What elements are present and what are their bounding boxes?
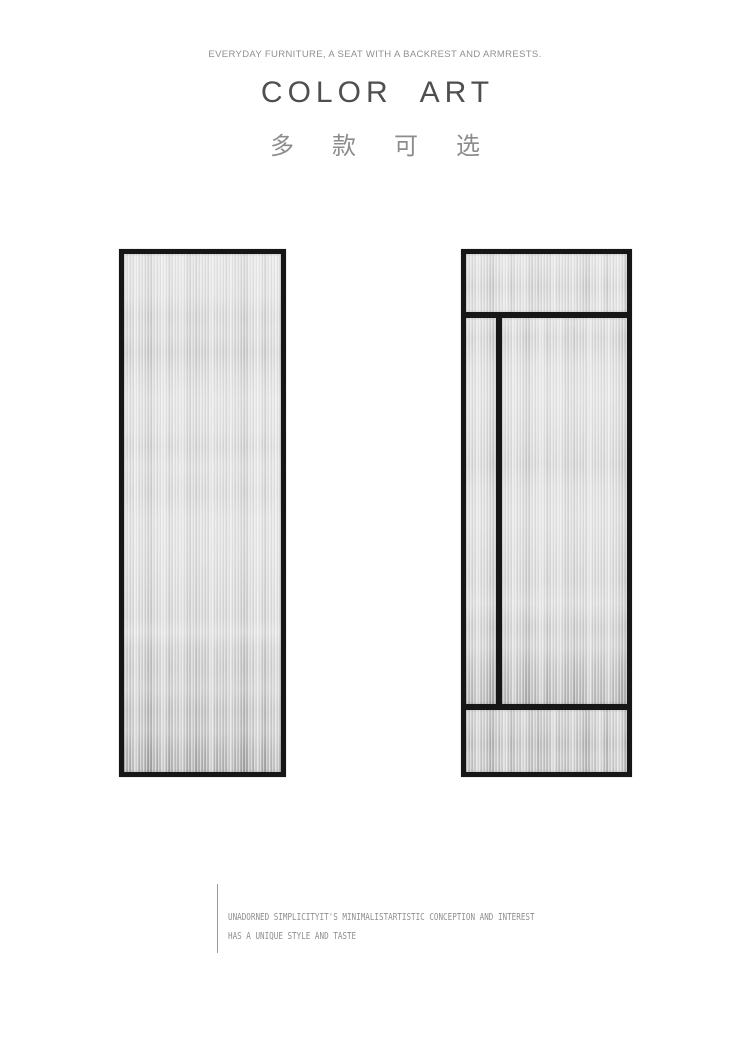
footer-caption: UNADORNED SIMPLICITYIT'S MINIMALISTARTIS…	[228, 908, 535, 946]
glass-pane-main	[502, 318, 627, 704]
tagline-text: EVERYDAY FURNITURE, A SEAT WITH A BACKRE…	[0, 49, 750, 60]
glass-panel-single	[119, 249, 286, 777]
glass-pane-top-band	[466, 254, 627, 312]
glass-pane-bottom-band	[466, 710, 627, 772]
title-word-art: ART	[420, 76, 494, 110]
glass-panel-middle-section	[466, 318, 627, 704]
title-word-color: COLOR	[261, 76, 393, 110]
caption-line-2: HAS A UNIQUE STYLE AND TASTE	[228, 927, 535, 946]
glass-panel-divided	[461, 249, 632, 777]
glass-pane-narrow-column	[466, 318, 496, 704]
accent-vertical-line	[217, 884, 218, 953]
promo-page: EVERYDAY FURNITURE, A SEAT WITH A BACKRE…	[0, 0, 750, 1040]
glass-pane	[124, 254, 281, 772]
page-title: COLOR ART	[0, 76, 750, 110]
caption-line-1: UNADORNED SIMPLICITYIT'S MINIMALISTARTIS…	[228, 908, 535, 927]
subtitle-chinese: 多款可选	[19, 126, 750, 161]
